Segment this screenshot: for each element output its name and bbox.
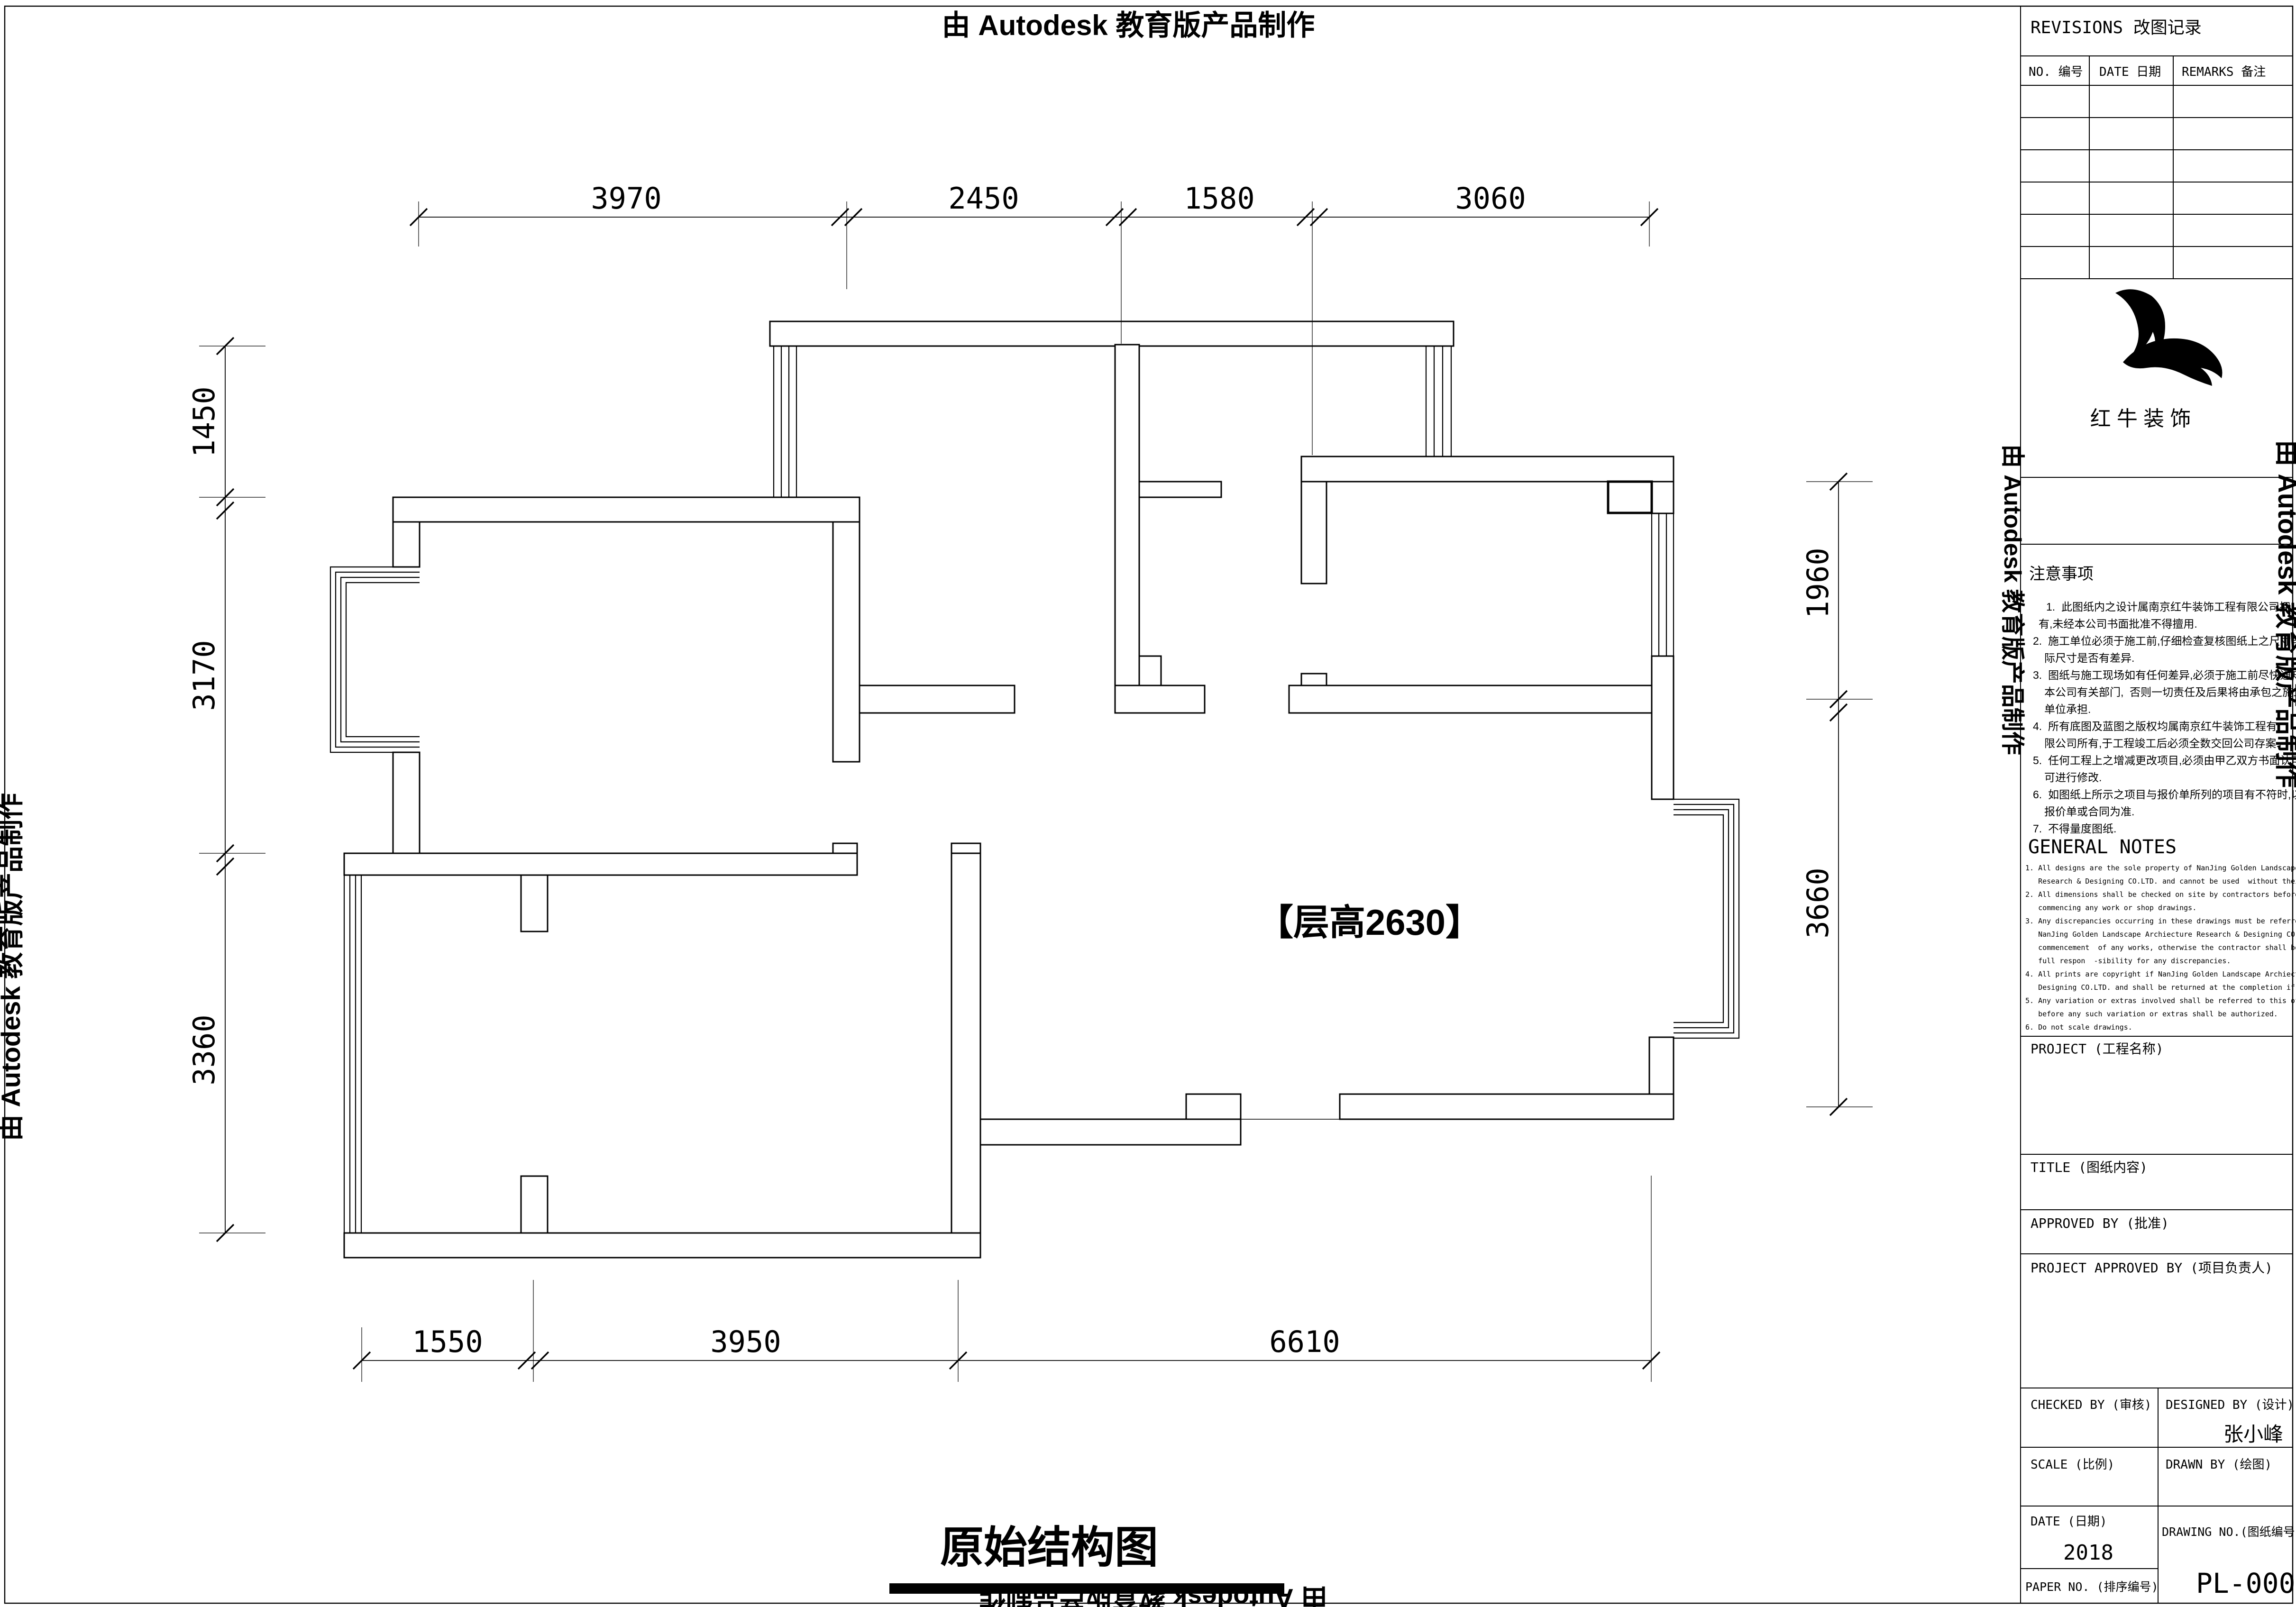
watermark-right-edge: 由 Autodesk 教育版产品制作: [2273, 440, 2296, 788]
project-label: PROJECT (工程名称): [2031, 1041, 2164, 1057]
notes-en-line: Designing CO.LTD. and shall be returned …: [2025, 983, 2296, 992]
watermark-plan-right: 由 Autodesk 教育版产品制作: [1999, 444, 2026, 755]
drawing-no-value: PL-000: [2196, 1567, 2296, 1599]
notes-en-line: 3. Any discrepancies occurring in these …: [2025, 917, 2296, 925]
wall-notch-left: [833, 843, 857, 853]
wall-bedroom2-right-lower: [1652, 656, 1674, 799]
notes-cn-line: 限公司所有,于工程竣工后必须全数交回公司存案.: [2044, 737, 2279, 749]
wall-livingroom-right: [951, 853, 980, 1233]
notes-en-line: commencement of any works, otherwise the…: [2025, 943, 2296, 952]
title-underline-bar: [889, 1583, 1284, 1594]
watermark-top: 由 Autodesk 教育版产品制作: [942, 9, 1315, 41]
notes-en-line: 5. Any variation or extras involved shal…: [2025, 996, 2296, 1005]
dim-top-4: 3060: [1455, 181, 1526, 216]
wall-bedroom1-left-upper: [393, 522, 420, 567]
wall-bedroom2-top: [1301, 457, 1674, 482]
wall-step-block: [1186, 1094, 1241, 1119]
notes-cn-line: 本公司有关部门, 否则一切责任及后果将由承包之施工: [2044, 686, 2296, 698]
wall-top-band: [770, 321, 1454, 346]
notes-en-line: NanJing Golden Landscape Archiecture Res…: [2025, 930, 2296, 939]
wall-stub-up: [521, 1176, 548, 1233]
revisions-title: REVISIONS 改图记录: [2031, 18, 2202, 37]
bay-window-right: [1674, 799, 1739, 1038]
notes-cn-title: 注意事项: [2029, 565, 2094, 583]
floor-plan: 【层高2630】: [330, 321, 1739, 1258]
brand-logo: [2115, 289, 2223, 386]
notes-cn-line: 3. 图纸与施工现场如有任何差异,必须于施工前尽快通知: [2033, 669, 2296, 681]
wall-bedroom1-top: [393, 497, 860, 522]
notes-cn-line: 6. 如图纸上所示之项目与报价单所列的项目有不符时,以: [2033, 788, 2296, 801]
titleblock-panel: REVISIONS 改图记录 NO. 编号 DATE 日期 REMARKS 备注…: [2021, 18, 2296, 1603]
window-bedroom1-left: [330, 567, 420, 752]
dim-left-2: 3170: [187, 640, 221, 711]
wall-divider-stub: [1139, 482, 1221, 497]
notes-cn-body: 1. 此图纸内之设计属南京红牛装饰工程有限公司拥 有,未经本公司书面批准不得擅用…: [2033, 601, 2296, 835]
wall-stub-down: [521, 875, 548, 931]
drawn-label: DRAWN BY (绘图): [2166, 1458, 2272, 1472]
checked-label: CHECKED BY (审核): [2031, 1398, 2152, 1412]
project-approved-label: PROJECT APPROVED BY (项目负责人): [2031, 1260, 2273, 1276]
wall-bedroom1-right: [833, 522, 860, 762]
watermark-left: 由 Autodesk 教育版产品制作: [0, 793, 26, 1141]
notes-en-line: commencing any work or shop drawings.: [2025, 904, 2196, 912]
notes-en-line: full respon -sibility for any discrepanc…: [2025, 957, 2231, 965]
notes-cn-line: 可进行修改.: [2044, 771, 2102, 784]
notes-cn-line: 际尺寸是否有差异.: [2044, 652, 2134, 664]
dim-right-1: 1960: [1801, 548, 1835, 618]
dim-right-2: 3660: [1801, 867, 1835, 938]
title-label: TITLE (图纸内容): [2031, 1160, 2148, 1175]
dim-top-2: 2450: [948, 181, 1019, 216]
wall-bedroom2-right-upper: [1652, 482, 1674, 513]
dimensions: 3970 2450 1580 3060 1450 3170 3360: [187, 181, 1873, 1382]
wall-livingroom-bottom: [344, 1233, 980, 1258]
watermarks: 由 Autodesk 教育版产品制作 由 Autodesk 教育版产品制作 由 …: [0, 9, 2296, 1607]
notes-en-title: GENERAL NOTES: [2028, 836, 2177, 858]
notes-cn-line: 报价单或合同为准.: [2044, 805, 2134, 818]
notes-en-line: 6. Do not scale drawings.: [2025, 1023, 2132, 1032]
approved-label: APPROVED BY (批准): [2031, 1215, 2169, 1231]
notes-en-line: 1. All designs are the sole property of …: [2025, 864, 2296, 872]
dim-bottom-2: 3950: [710, 1324, 781, 1359]
drawing-title: 原始结构图: [940, 1524, 1158, 1572]
brand-name: 红 牛 装 饰: [2090, 407, 2191, 430]
wall-corridor-stub-right: [1115, 685, 1205, 713]
revisions-col-no: NO. 编号: [2029, 65, 2083, 79]
window-top-left: [774, 346, 796, 497]
wall-bedroom2-bottom: [1289, 685, 1652, 713]
designed-label: DESIGNED BY (设计): [2166, 1398, 2294, 1412]
dim-top-1: 3970: [591, 181, 661, 216]
notes-en-line: Research & Designing CO.LTD. and cannot …: [2025, 877, 2296, 886]
notes-en-body: 1. All designs are the sole property of …: [2025, 864, 2296, 1032]
notes-en-line: 2. All dimensions shall be checked on si…: [2025, 890, 2296, 899]
dim-bottom-1: 1550: [412, 1324, 483, 1359]
notes-en-line: before any such variation or extras shal…: [2025, 1010, 2278, 1018]
wall-middle-band: [344, 853, 857, 875]
window-bedroom2-right: [1652, 513, 1674, 656]
notes-cn-line: 5. 任何工程上之增减更改项目,必须由甲乙双方书面认可,: [2033, 754, 2296, 767]
notes-cn-line: 7. 不得量度图纸.: [2033, 822, 2116, 835]
dim-bottom-3: 6610: [1269, 1324, 1340, 1359]
wall-bottom-right-band: [1340, 1094, 1674, 1119]
drawing-no-label: DRAWING NO.(图纸编号): [2162, 1525, 2296, 1539]
wall-bedroom2-step: [1301, 674, 1326, 685]
drawing-sheet: 由 Autodesk 教育版产品制作 由 Autodesk 教育版产品制作 由 …: [0, 0, 2296, 1607]
date-label: DATE (日期): [2031, 1515, 2107, 1529]
notes-en-line: 4. All prints are copyright if NanJing G…: [2025, 970, 2296, 978]
dim-left-1: 1450: [187, 386, 221, 457]
date-value: 2018: [2063, 1541, 2113, 1565]
drawing-title-block: 原始结构图: [889, 1524, 1284, 1594]
wall-corridor-stub-left: [860, 685, 1015, 713]
wall-divider: [1115, 345, 1139, 685]
column-bedroom2: [1608, 482, 1652, 513]
wall-bedroom1-left-lower: [393, 752, 420, 853]
notes-cn-line: 有,未经本公司书面批准不得擅用.: [2039, 618, 2197, 630]
window-livingroom-left: [344, 875, 361, 1233]
floor-height-label: 【层高2630】: [1257, 903, 1482, 943]
window-top-right: [1426, 346, 1451, 457]
notes-cn-line: 1. 此图纸内之设计属南京红牛装饰工程有限公司拥: [2046, 601, 2290, 613]
scale-label: SCALE (比例): [2031, 1458, 2114, 1472]
dim-top-3: 1580: [1184, 181, 1254, 216]
revisions-col-date: DATE 日期: [2099, 65, 2161, 79]
wall-hall-band: [980, 1119, 1241, 1145]
paper-no-label: PAPER NO. (排序编号): [2025, 1580, 2159, 1594]
notes-cn-line: 4. 所有底图及蓝图之版权均属南京红牛装饰工程有: [2033, 720, 2277, 732]
notes-cn-line: 单位承担.: [2044, 703, 2091, 715]
wall-bedroom2-left: [1301, 482, 1326, 584]
notes-cn-line: 2. 施工单位必须于施工前,仔细检查复核图纸上之尺寸与实: [2033, 635, 2296, 647]
dim-left-3: 3360: [187, 1014, 221, 1085]
revisions-col-remarks: REMARKS 备注: [2182, 65, 2266, 79]
wall-divider-bump: [1139, 656, 1161, 685]
designer-name: 张小峰: [2223, 1423, 2283, 1445]
sheet-border: [5, 6, 2293, 1603]
wall-notch-right: [951, 843, 980, 853]
